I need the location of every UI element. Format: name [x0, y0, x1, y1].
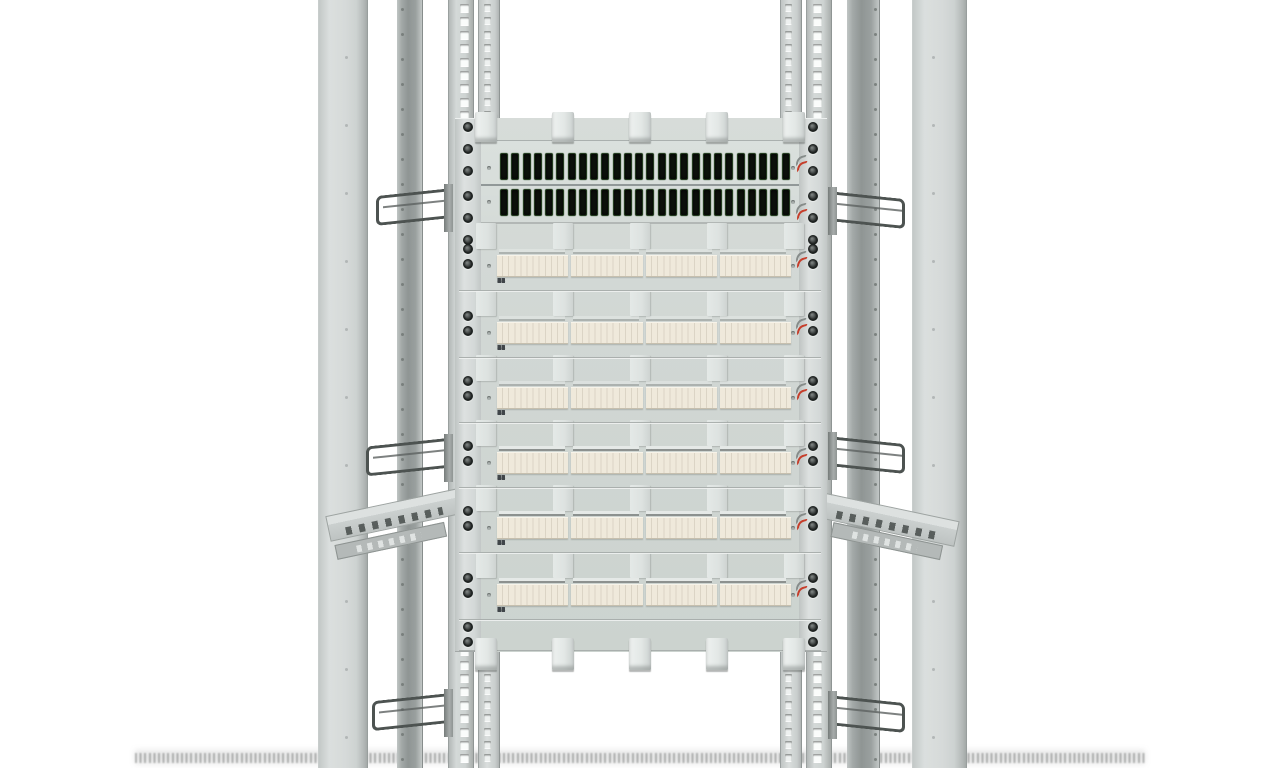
panel-side-dot [487, 593, 491, 597]
fiber-adapter [759, 189, 767, 216]
fiber-adapter [511, 189, 519, 216]
cable-guide-tab [707, 223, 727, 249]
cable-management-ring-left [372, 693, 452, 731]
label-holder [646, 381, 712, 386]
post-hole [874, 683, 877, 686]
cable-guide-tab [706, 112, 728, 142]
panel-side-dot [791, 593, 795, 597]
post-hole [345, 464, 348, 467]
cable-guide-tab [629, 112, 651, 142]
fiber-adapter [534, 153, 542, 180]
rail-hole [484, 674, 491, 682]
fiber-adapter [624, 189, 632, 216]
post-hole [874, 308, 877, 311]
port-number-row: 123456789101112131415161718192021222324 [497, 344, 791, 353]
mounting-screw [808, 573, 818, 583]
inner-post-left [397, 0, 423, 768]
distribution-module-row [497, 584, 791, 606]
post-hole [401, 158, 404, 161]
ring-wire [379, 704, 452, 720]
row-divider-highlight [459, 488, 821, 489]
rail-hole [785, 741, 792, 749]
rail-hole [460, 687, 469, 696]
post-hole [874, 233, 877, 236]
rail-hole [484, 98, 491, 106]
cable-guide-tab [783, 112, 805, 142]
rail-hole [785, 714, 792, 722]
label-holder [499, 446, 565, 451]
post-hole [401, 608, 404, 611]
fiber-panel-divider [481, 184, 799, 186]
rail-hole [460, 714, 469, 723]
rail-hole [484, 17, 491, 25]
cable-guide-tab [553, 552, 573, 578]
terminal-block-group [720, 584, 791, 606]
mounting-screw [808, 441, 818, 451]
cable-management-ring-left [376, 188, 452, 226]
rack-front-view: 1234567891011121314151617181920212223241… [0, 0, 1280, 768]
panel-side-dot [487, 331, 491, 335]
mounting-screw [808, 376, 818, 386]
rail-hole [813, 701, 822, 710]
ring-bracket [828, 187, 837, 235]
fiber-adapter [534, 189, 542, 216]
post-hole [401, 233, 404, 236]
post-hole [874, 58, 877, 61]
post-hole [401, 433, 404, 436]
cable-guide-tab [783, 638, 805, 670]
distribution-module-row [497, 255, 791, 277]
rail-hole [813, 687, 822, 696]
label-holder [720, 381, 786, 386]
fiber-adapter-row [500, 153, 790, 180]
rail-hole [460, 4, 469, 13]
port-number-label: 24 [497, 606, 505, 615]
post-hole [874, 83, 877, 86]
cable-management-ring-right [828, 695, 905, 733]
post-hole [874, 558, 877, 561]
ring-wire [832, 447, 902, 462]
port-number-label: 24 [497, 277, 505, 286]
post-hole [874, 483, 877, 486]
outer-post-right [912, 0, 967, 768]
panel-side-dot [487, 200, 491, 204]
post-hole [874, 158, 877, 161]
post-hole [932, 736, 935, 739]
row-divider-highlight [459, 291, 821, 292]
fiber-adapter [556, 153, 564, 180]
mounting-screw [463, 122, 473, 132]
cable-management-ring-right [828, 191, 905, 229]
label-holder [573, 249, 639, 254]
fiber-adapter [545, 189, 553, 216]
ring-wire [383, 199, 452, 214]
rail-hole [484, 741, 491, 749]
label-holder [720, 511, 786, 516]
fiber-adapter [511, 153, 519, 180]
post-hole [874, 758, 877, 761]
cable-guide-tab [553, 290, 573, 316]
post-hole [401, 33, 404, 36]
distribution-module-row [497, 452, 791, 474]
post-hole [932, 192, 935, 195]
label-holder [720, 446, 786, 451]
panel-side-dot [791, 461, 795, 465]
ring-wire [373, 448, 452, 464]
rail-hole [785, 701, 792, 709]
mounting-screw [463, 573, 473, 583]
mounting-screw [808, 244, 818, 254]
mounting-screw [463, 622, 473, 632]
rail-hole [460, 728, 469, 737]
fiber-adapter [613, 189, 621, 216]
label-holder [573, 446, 639, 451]
mounting-screw [808, 213, 818, 223]
mounting-screw [463, 391, 473, 401]
terminal-block-group [720, 517, 791, 539]
fiber-adapter [658, 153, 666, 180]
post-hole [401, 758, 404, 761]
ring-wire [832, 202, 902, 217]
terminal-block-group [571, 452, 642, 474]
fiber-adapter [782, 153, 790, 180]
mounting-screw [463, 191, 473, 201]
post-hole [874, 583, 877, 586]
rail-hole [785, 674, 792, 682]
cable-management-ring-right [828, 436, 905, 474]
row-divider-highlight [459, 620, 821, 621]
label-holder [499, 316, 565, 321]
post-hole [932, 464, 935, 467]
mounting-screw [463, 144, 473, 154]
post-hole [401, 58, 404, 61]
label-holder [573, 316, 639, 321]
fiber-adapter [624, 153, 632, 180]
cable-guide-tab [629, 638, 651, 670]
post-hole [932, 124, 935, 127]
post-hole [345, 396, 348, 399]
post-hole [874, 8, 877, 11]
label-holder [646, 316, 712, 321]
post-hole [401, 358, 404, 361]
post-hole [401, 108, 404, 111]
post-hole [874, 408, 877, 411]
rail-hole [460, 71, 469, 80]
rail-hole [785, 687, 792, 695]
fiber-adapter [523, 189, 531, 216]
rail-hole [460, 84, 469, 93]
post-hole [401, 658, 404, 661]
post-hole [874, 658, 877, 661]
fiber-adapter [737, 189, 745, 216]
terminal-block-group [646, 584, 717, 606]
fiber-adapter [601, 153, 609, 180]
panel-side-dot [487, 396, 491, 400]
post-hole [874, 358, 877, 361]
terminal-block-group [720, 387, 791, 409]
port-number-row: 123456789101112131415161718192021222324 [497, 606, 791, 615]
rail-hole [460, 44, 469, 53]
cable-guide-tab [475, 112, 497, 142]
post-hole [345, 124, 348, 127]
cable-guide-tab [475, 638, 497, 670]
mounting-screw [463, 441, 473, 451]
distribution-module-row [497, 517, 791, 539]
cable-guide-tab [630, 290, 650, 316]
cable-guide-tab [784, 552, 804, 578]
label-holder [499, 511, 565, 516]
ring-bracket [828, 432, 837, 480]
label-holder [646, 446, 712, 451]
post-hole [932, 668, 935, 671]
terminal-block-group [571, 584, 642, 606]
post-hole [874, 733, 877, 736]
rail-hole [484, 714, 491, 722]
rail-hole [484, 701, 491, 709]
post-hole [874, 283, 877, 286]
post-hole [401, 83, 404, 86]
mounting-screw [808, 506, 818, 516]
rail-hole [460, 17, 469, 26]
fiber-adapter [703, 153, 711, 180]
mounting-screw [463, 376, 473, 386]
fiber-adapter [601, 189, 609, 216]
post-hole [401, 8, 404, 11]
mounting-screw [463, 326, 473, 336]
fiber-adapter [613, 153, 621, 180]
panel-side-dot [791, 264, 795, 268]
rail-hole [785, 17, 792, 25]
distribution-module-row [497, 322, 791, 344]
terminal-block-group [646, 322, 717, 344]
outer-post-left [318, 0, 368, 768]
terminal-block-group [497, 255, 568, 277]
rail-hole [813, 58, 822, 67]
post-hole [345, 260, 348, 263]
post-hole [401, 483, 404, 486]
row-divider-highlight [459, 423, 821, 424]
panel-side-dot [791, 166, 795, 170]
post-hole [932, 328, 935, 331]
rail-hole [460, 58, 469, 67]
fiber-adapter [579, 189, 587, 216]
panel-side-dot [791, 396, 795, 400]
mounting-screw [463, 588, 473, 598]
port-number-label: 24 [497, 409, 505, 418]
panel-side-dot [487, 166, 491, 170]
mounting-screw [463, 166, 473, 176]
rail-hole [484, 728, 491, 736]
cable-guide-tab [707, 290, 727, 316]
row-divider-highlight [459, 553, 821, 554]
terminal-block-group [646, 255, 717, 277]
rail-hole [813, 661, 822, 670]
rail-hole [813, 674, 822, 683]
ring-bracket [828, 691, 837, 739]
label-holder [499, 578, 565, 583]
post-hole [874, 33, 877, 36]
mounting-screw [808, 622, 818, 632]
post-hole [874, 608, 877, 611]
terminal-block-group [646, 517, 717, 539]
post-hole [874, 633, 877, 636]
post-hole [401, 633, 404, 636]
label-holder [499, 381, 565, 386]
rail-hole [813, 728, 822, 737]
panel-side-dot [791, 200, 795, 204]
post-hole [401, 583, 404, 586]
post-hole [874, 183, 877, 186]
post-hole [345, 328, 348, 331]
mounting-screw [463, 521, 473, 531]
fiber-adapter [759, 153, 767, 180]
rail-hole [785, 4, 792, 12]
rail-hole [785, 728, 792, 736]
fiber-adapter [579, 153, 587, 180]
post-hole [401, 183, 404, 186]
fiber-adapter [523, 153, 531, 180]
port-number-row: 123456789101112131415161718192021222324 [497, 474, 791, 483]
terminal-block-group [497, 322, 568, 344]
rail-hole [460, 754, 469, 763]
label-holder [573, 511, 639, 516]
fiber-adapter [725, 189, 733, 216]
fiber-adapter [556, 189, 564, 216]
cable-guide-tab [552, 638, 574, 670]
post-hole [401, 308, 404, 311]
fiber-adapter [635, 153, 643, 180]
fiber-adapter-row [500, 189, 790, 216]
cable-guide-tab [784, 290, 804, 316]
fiber-adapter [545, 153, 553, 180]
rail-hole [813, 71, 822, 80]
post-hole [401, 683, 404, 686]
port-number-label: 24 [497, 539, 505, 548]
rail-hole [460, 661, 469, 670]
rail-hole [484, 687, 491, 695]
rail-hole [484, 71, 491, 79]
fiber-adapter [646, 189, 654, 216]
post-hole [932, 600, 935, 603]
post-hole [401, 283, 404, 286]
label-holder [646, 578, 712, 583]
fiber-adapter [725, 153, 733, 180]
post-hole [345, 668, 348, 671]
fiber-adapter [568, 153, 576, 180]
rail-hole [785, 44, 792, 52]
post-hole [874, 108, 877, 111]
rail-hole [785, 31, 792, 39]
fiber-adapter [500, 153, 508, 180]
cable-guide-tab [784, 223, 804, 249]
ground-shadow [135, 753, 1145, 763]
rail-hole [460, 701, 469, 710]
post-hole [345, 56, 348, 59]
mounting-screw [463, 244, 473, 254]
panel-side-dot [487, 526, 491, 530]
post-hole [401, 133, 404, 136]
cable-guide-tab [476, 552, 496, 578]
cable-guide-tab [630, 223, 650, 249]
port-number-label: 24 [497, 344, 505, 353]
fiber-adapter [692, 189, 700, 216]
terminal-block-group [646, 387, 717, 409]
terminal-block-group [571, 255, 642, 277]
terminal-block-group [497, 452, 568, 474]
rail-hole [484, 84, 491, 92]
post-hole [401, 733, 404, 736]
mounting-screw [808, 311, 818, 321]
terminal-block-group [571, 322, 642, 344]
post-hole [874, 333, 877, 336]
fiber-adapter [680, 189, 688, 216]
cable-guide-tab [552, 112, 574, 142]
ring-bracket [444, 689, 453, 737]
rail-hole [785, 754, 792, 762]
fiber-adapter [590, 153, 598, 180]
rail-hole [484, 58, 491, 66]
terminal-block-group [571, 387, 642, 409]
rail-hole [460, 98, 469, 107]
distribution-module-row [497, 387, 791, 409]
fiber-adapter [568, 189, 576, 216]
rail-hole [813, 17, 822, 26]
inner-post-right [847, 0, 880, 768]
fiber-adapter [646, 153, 654, 180]
post-hole [401, 333, 404, 336]
fiber-adapter [770, 153, 778, 180]
fiber-adapter [703, 189, 711, 216]
panel-side-dot [487, 264, 491, 268]
post-hole [874, 133, 877, 136]
panel-side-dot [487, 461, 491, 465]
mounting-screw [463, 506, 473, 516]
rail-hole [785, 71, 792, 79]
fiber-adapter [669, 189, 677, 216]
post-hole [401, 408, 404, 411]
cable-guide-tab [707, 552, 727, 578]
row-divider-highlight [459, 358, 821, 359]
ring-bracket [444, 184, 453, 232]
port-number-row: 123456789101112131415161718192021222324 [497, 409, 791, 418]
post-hole [932, 56, 935, 59]
cable-guide-tab [553, 223, 573, 249]
fiber-adapter [669, 153, 677, 180]
fiber-adapter [680, 153, 688, 180]
rail-hole [785, 58, 792, 66]
cable-guide-tab [630, 552, 650, 578]
label-holder [646, 249, 712, 254]
mounting-screw [808, 122, 818, 132]
mounting-screw [808, 144, 818, 154]
label-holder [646, 511, 712, 516]
rail-hole [460, 31, 469, 40]
mounting-screw [463, 259, 473, 269]
post-hole [401, 258, 404, 261]
cable-guide-tab [706, 638, 728, 670]
rail-hole [813, 741, 822, 750]
fiber-adapter [782, 189, 790, 216]
mounting-screw [463, 637, 473, 647]
ring-bracket [444, 434, 453, 482]
fiber-adapter [714, 189, 722, 216]
cable-guide-tab [476, 223, 496, 249]
fiber-adapter [500, 189, 508, 216]
rail-hole [460, 741, 469, 750]
port-number-label: 24 [497, 474, 505, 483]
mounting-screw [463, 311, 473, 321]
label-holder [720, 249, 786, 254]
